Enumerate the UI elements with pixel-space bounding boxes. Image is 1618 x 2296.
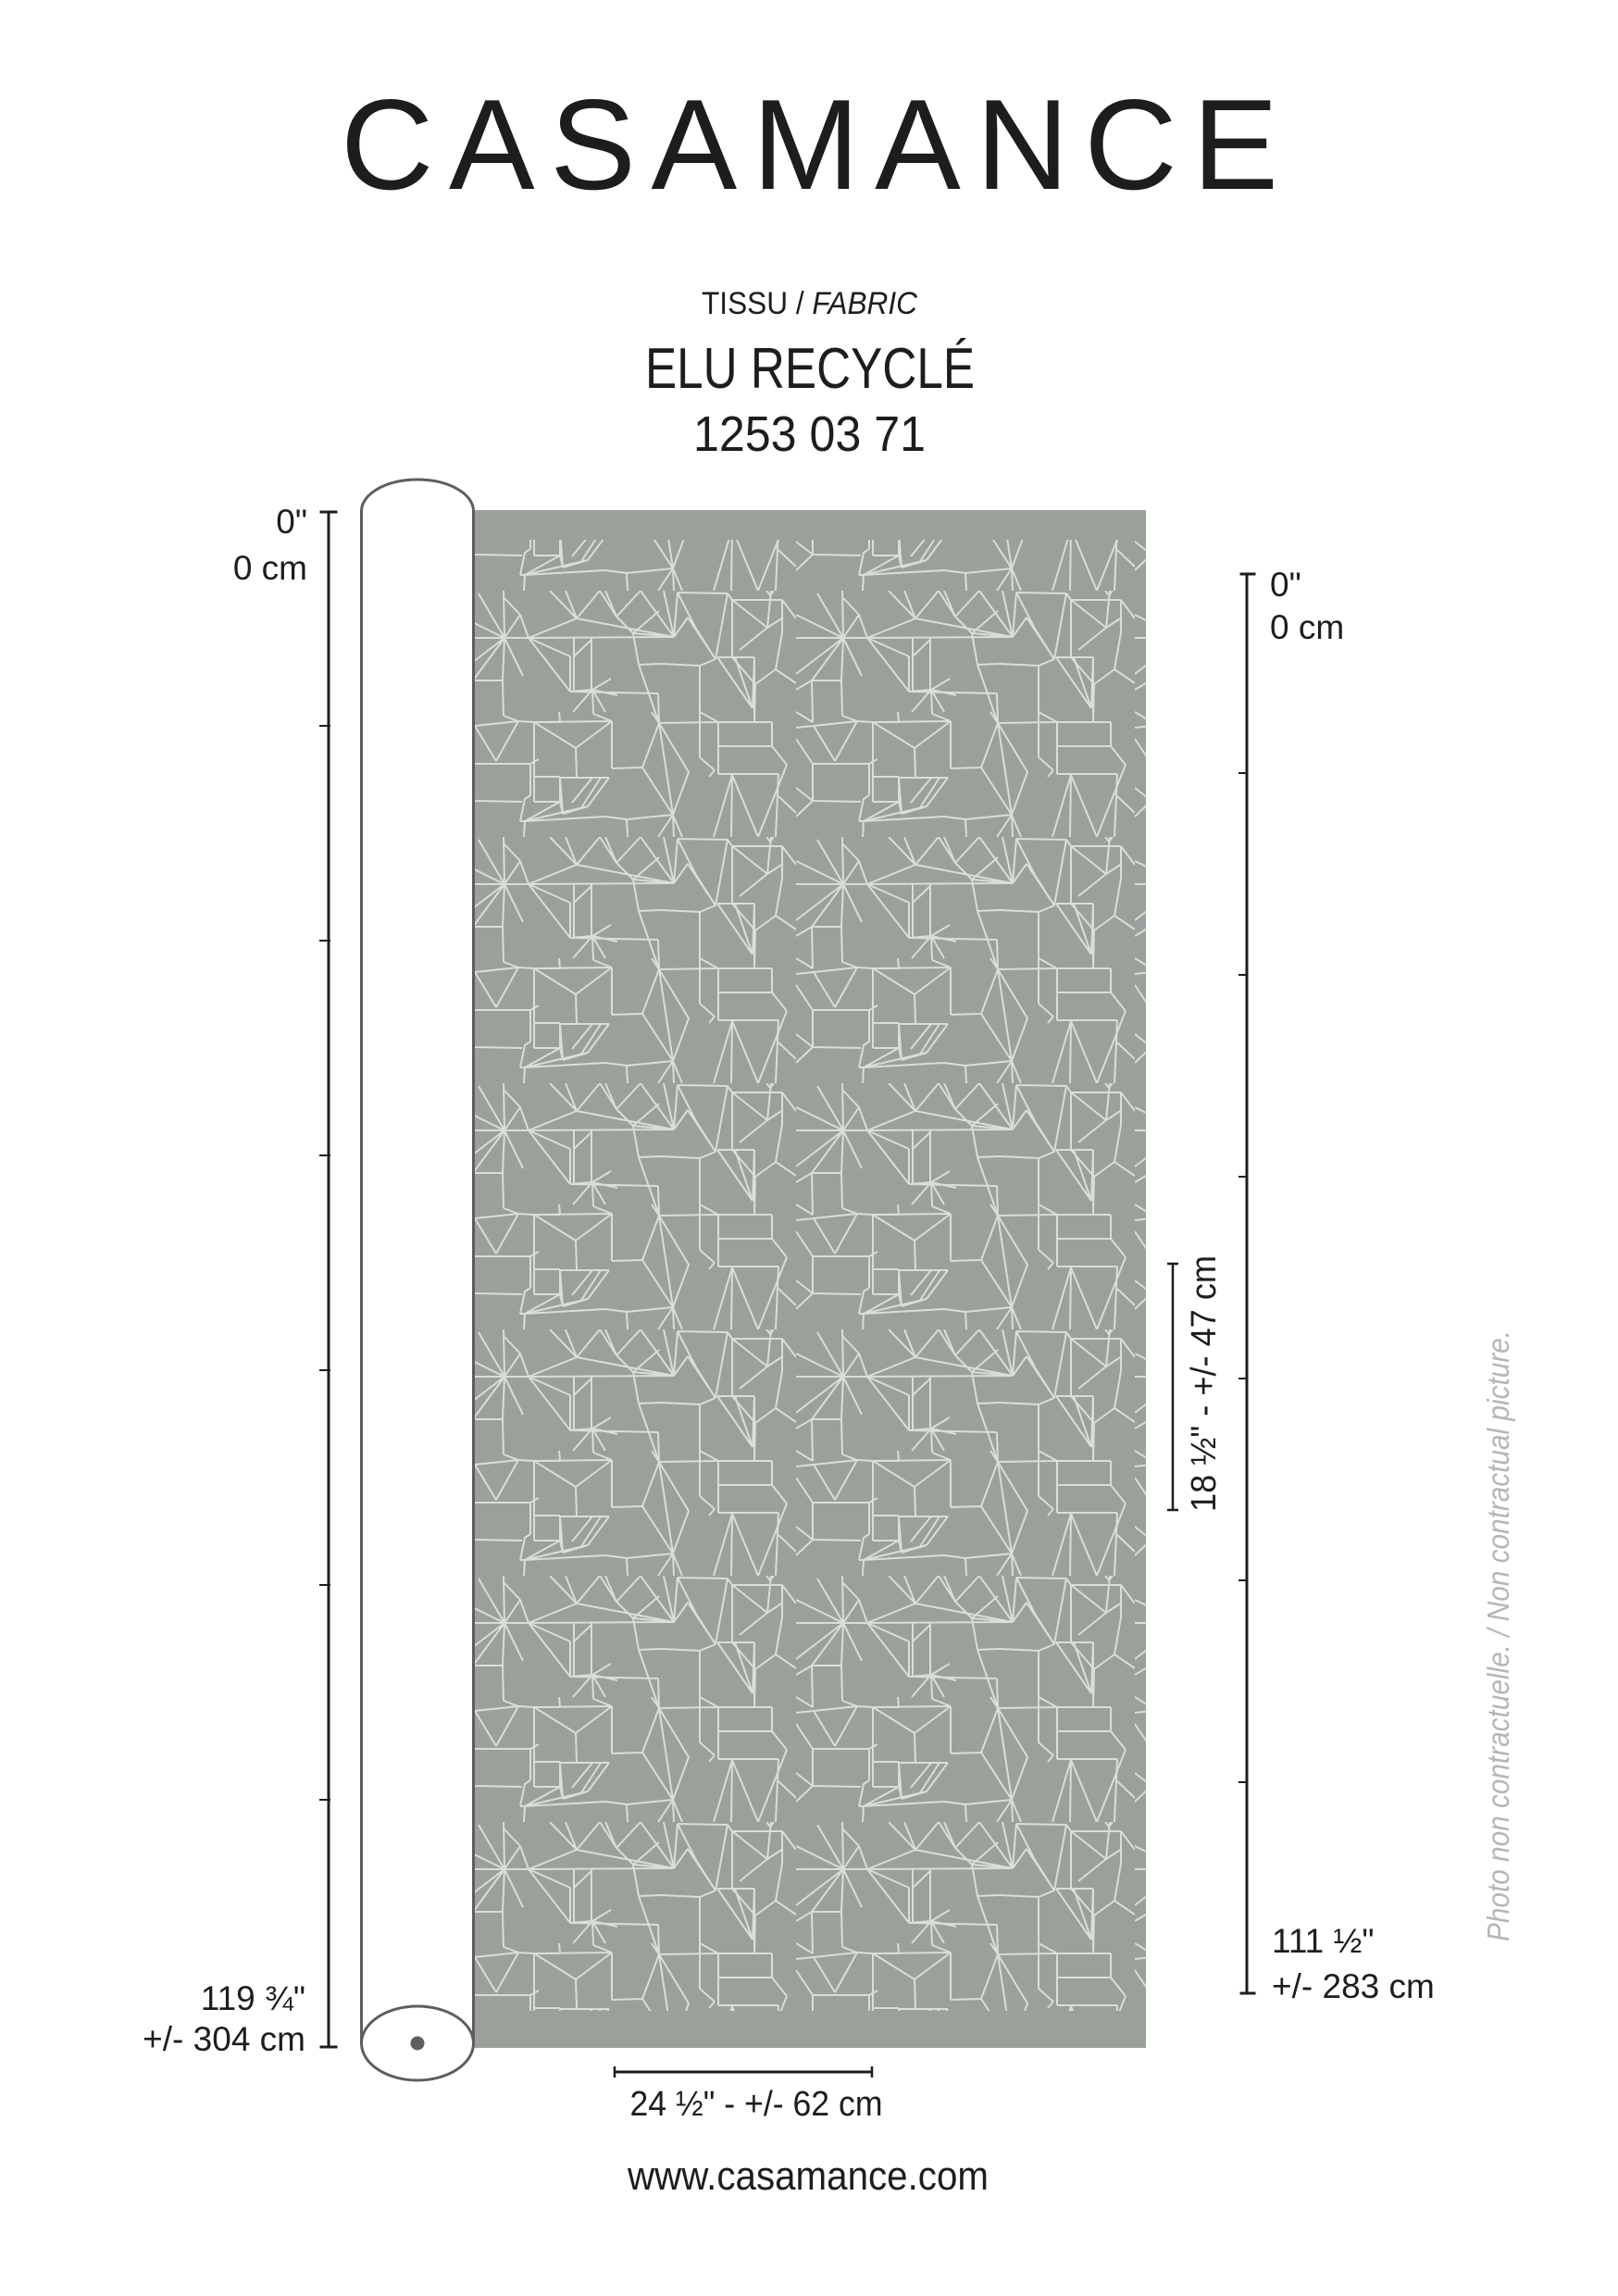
svg-text:+/- 283 cm: +/- 283 cm bbox=[1272, 1967, 1435, 2005]
svg-text:0 cm: 0 cm bbox=[233, 549, 307, 587]
svg-text:www.casamance.com: www.casamance.com bbox=[627, 2153, 989, 2199]
svg-text:CASAMANCE: CASAMANCE bbox=[341, 73, 1278, 217]
svg-text:1253 03 71: 1253 03 71 bbox=[693, 406, 926, 462]
svg-text:119 ¾": 119 ¾" bbox=[201, 1979, 305, 2017]
svg-text:Photo non contractuelle. / Non: Photo non contractuelle. / Non contractu… bbox=[1481, 1330, 1515, 1941]
svg-text:0": 0" bbox=[1270, 566, 1301, 604]
svg-text:24 ½" - +/- 62 cm: 24 ½" - +/- 62 cm bbox=[630, 2085, 883, 2124]
svg-text:0 cm: 0 cm bbox=[1270, 608, 1344, 646]
svg-text:0": 0" bbox=[276, 503, 307, 541]
svg-text:ELU RECYCLÉ: ELU RECYCLÉ bbox=[645, 337, 975, 401]
svg-text:TISSU / FABRIC: TISSU / FABRIC bbox=[702, 286, 917, 321]
svg-text:+/- 304 cm: +/- 304 cm bbox=[143, 2020, 305, 2058]
svg-text:111 ½": 111 ½" bbox=[1272, 1922, 1375, 1960]
svg-text:18 ½" - +/- 47 cm: 18 ½" - +/- 47 cm bbox=[1185, 1255, 1224, 1512]
